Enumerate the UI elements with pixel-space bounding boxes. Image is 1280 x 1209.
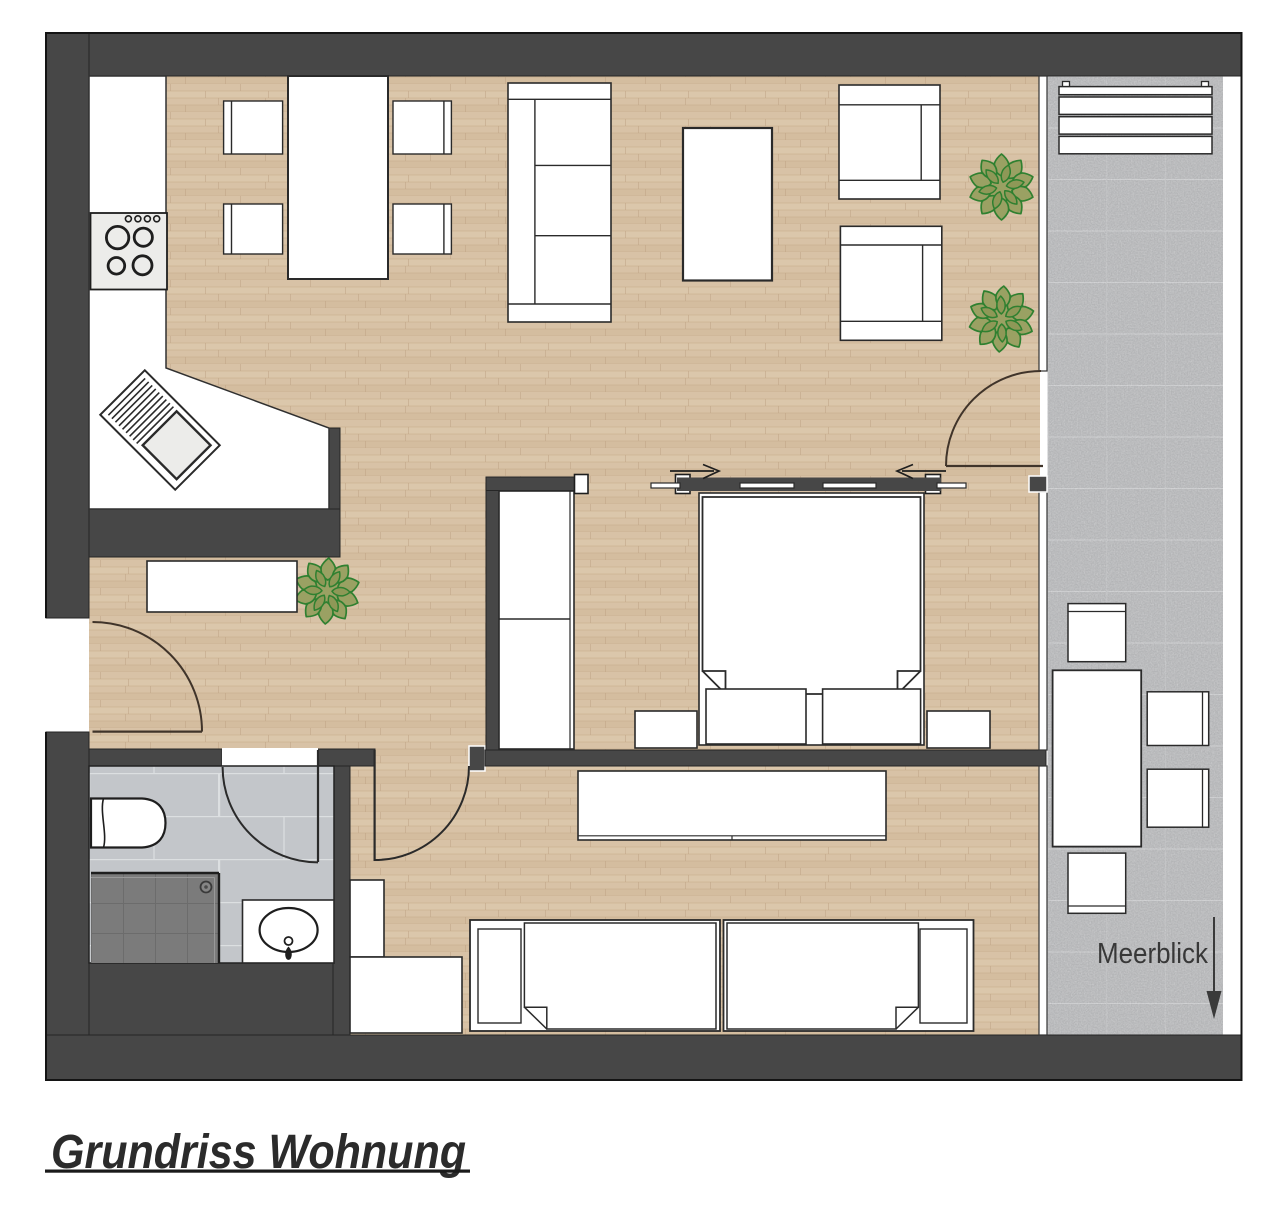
svg-text:Meerblick: Meerblick [1097, 938, 1208, 970]
